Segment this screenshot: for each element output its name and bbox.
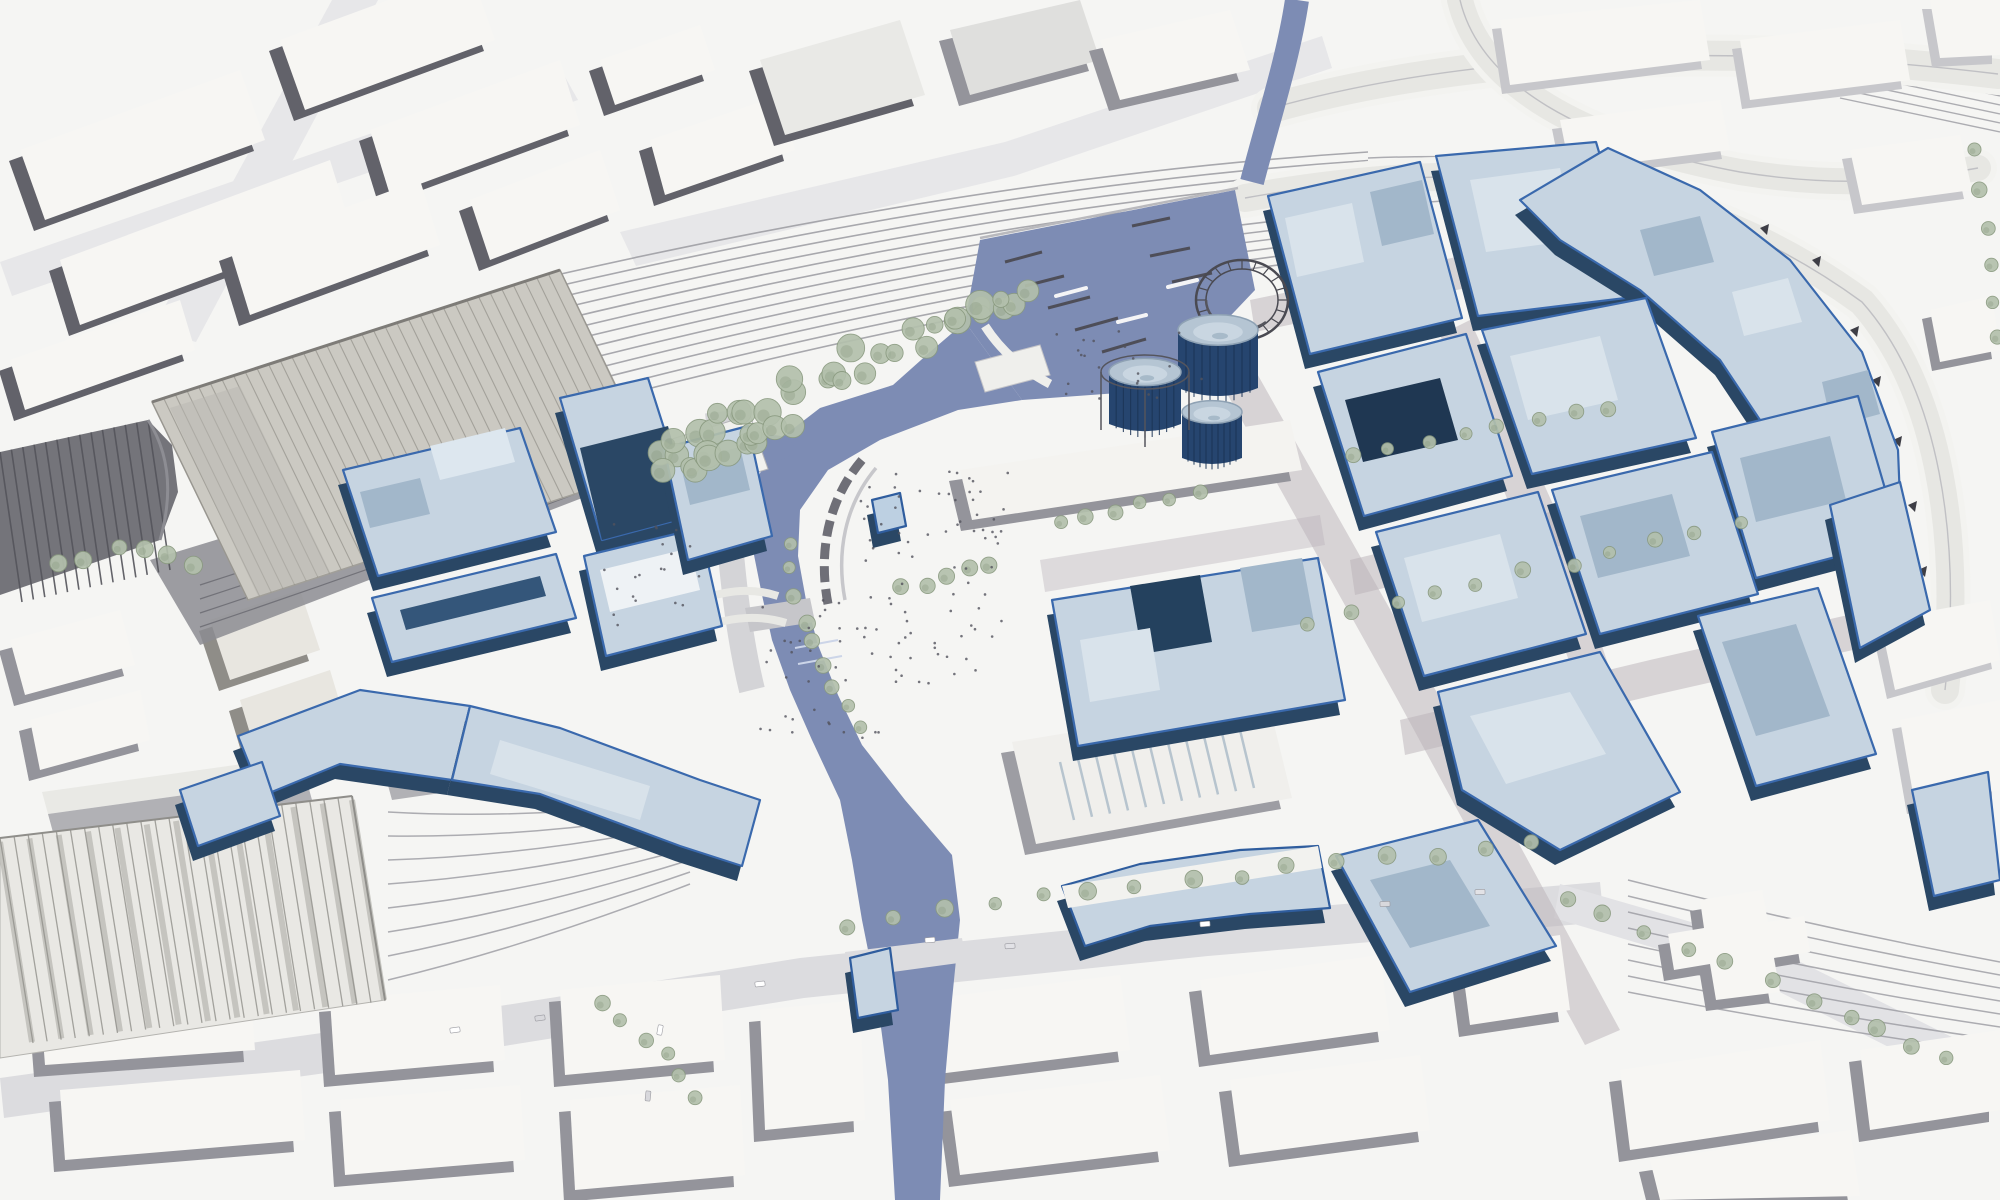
pedestrian: [770, 649, 773, 652]
pedestrian: [634, 599, 637, 602]
tree-shade: [1039, 893, 1045, 899]
pedestrian: [632, 595, 635, 598]
pedestrian: [869, 596, 872, 599]
pedestrian: [616, 624, 619, 627]
tree-shade: [1689, 532, 1695, 538]
pedestrian: [822, 599, 825, 602]
tree-shade: [784, 424, 794, 434]
pedestrian: [968, 491, 971, 494]
car: [450, 1027, 461, 1033]
pedestrian: [907, 541, 910, 544]
tree-shade: [1562, 898, 1569, 905]
pedestrian: [670, 553, 673, 556]
pedestrian: [898, 495, 901, 498]
pedestrian: [933, 646, 936, 649]
pedestrian: [997, 542, 1000, 545]
housing-block: [760, 1000, 865, 1130]
tree-shade: [161, 553, 169, 561]
tree-shade: [641, 1039, 648, 1046]
pedestrian: [898, 532, 901, 535]
pedestrian: [838, 602, 841, 605]
pedestrian: [973, 530, 976, 533]
gasholder-cap: [1208, 416, 1220, 421]
tree-shade: [1870, 1026, 1878, 1034]
tree-shade: [1684, 948, 1690, 954]
pedestrian: [791, 731, 794, 734]
car: [535, 1015, 546, 1021]
pedestrian: [834, 666, 837, 669]
tree-shade: [1491, 425, 1497, 431]
pedestrian: [937, 653, 940, 656]
pedestrian: [827, 721, 830, 724]
tree-shade: [1129, 886, 1135, 892]
tree-shade: [918, 345, 928, 355]
pedestrian: [898, 642, 901, 645]
tree-shade: [1135, 501, 1141, 507]
tree-shade: [983, 564, 990, 571]
pedestrian: [784, 715, 787, 718]
tree-shade: [991, 902, 997, 908]
pedestrian: [895, 680, 898, 683]
tree-shade: [654, 468, 665, 479]
tree-shade: [785, 566, 790, 571]
pedestrian: [1132, 357, 1135, 360]
pedestrian: [675, 529, 678, 532]
pedestrian: [909, 657, 912, 660]
pedestrian: [895, 473, 898, 476]
pedestrian: [1055, 333, 1058, 336]
pedestrian: [897, 552, 900, 555]
tree-shade: [1603, 408, 1610, 415]
pedestrian: [974, 669, 977, 672]
pedestrian: [1082, 339, 1085, 342]
pedestrian: [948, 470, 951, 473]
pedestrian: [894, 506, 897, 509]
tree-shade: [788, 595, 795, 602]
tree-shade: [663, 1052, 669, 1058]
pedestrian: [946, 655, 949, 658]
pedestrian: [861, 736, 864, 739]
pedestrian: [990, 566, 993, 569]
pedestrian: [817, 665, 820, 668]
car: [1200, 921, 1210, 927]
car: [1475, 889, 1485, 894]
pedestrian: [790, 651, 793, 654]
tree-shade: [1280, 864, 1287, 871]
tree-shade: [1081, 890, 1089, 898]
pedestrian: [1156, 396, 1159, 399]
tree-shade: [1737, 521, 1743, 527]
tree-shade: [1394, 601, 1400, 607]
tree-shade: [735, 410, 746, 421]
pedestrian: [863, 518, 866, 521]
tree-shade: [938, 907, 946, 915]
pedestrian: [807, 680, 810, 683]
tree-shade: [1517, 568, 1524, 575]
pedestrian: [789, 641, 792, 644]
car: [645, 1091, 651, 1101]
tree-shade: [780, 376, 792, 388]
pedestrian: [1080, 354, 1083, 357]
pedestrian: [813, 708, 816, 711]
pedestrian: [824, 609, 827, 612]
tree-shade: [1056, 521, 1062, 527]
pedestrian: [952, 593, 955, 596]
tree-shade: [1905, 1045, 1912, 1052]
tree-shade: [664, 438, 675, 449]
tree-shade: [840, 345, 853, 358]
pedestrian: [991, 635, 994, 638]
pedestrian: [863, 636, 866, 639]
tree-shade: [947, 317, 956, 326]
pedestrian: [1124, 345, 1127, 348]
pedestrian: [974, 628, 977, 631]
pedestrian: [1000, 530, 1003, 533]
tree-shade: [1570, 564, 1576, 570]
pedestrian: [616, 587, 619, 590]
pedestrian: [869, 539, 872, 542]
pedestrian: [919, 490, 922, 493]
pedestrian: [890, 603, 893, 606]
car: [1380, 901, 1390, 907]
pedestrian: [1002, 508, 1005, 511]
pedestrian: [1200, 378, 1203, 381]
pedestrian: [894, 486, 897, 489]
pedestrian: [965, 658, 968, 661]
tree-shade: [826, 686, 833, 693]
tree-shade: [1767, 979, 1774, 986]
pedestrian: [889, 656, 892, 659]
pedestrian: [698, 575, 701, 578]
pedestrian: [603, 569, 606, 572]
pedestrian: [904, 611, 907, 614]
housing-block: [570, 1085, 745, 1190]
masterplan-rendering: [0, 0, 2000, 1200]
pedestrian: [956, 523, 959, 526]
pedestrian: [949, 610, 952, 613]
pedestrian: [798, 640, 801, 643]
pedestrian: [860, 500, 863, 503]
pedestrian: [1083, 354, 1086, 357]
tree-shade: [674, 1074, 680, 1080]
pedestrian: [681, 604, 684, 607]
pedestrian: [661, 543, 664, 546]
pedestrian: [953, 566, 956, 569]
pedestrian: [979, 490, 982, 493]
tree-shade: [964, 566, 971, 573]
tree-shade: [1080, 515, 1087, 522]
pedestrian: [900, 674, 903, 677]
tree-shade: [766, 425, 777, 436]
pedestrian: [663, 568, 666, 571]
tree-shade: [1809, 1000, 1816, 1007]
pedestrian: [638, 574, 641, 577]
pedestrian: [1077, 349, 1080, 352]
pedestrian: [911, 555, 914, 558]
tree-shade: [1302, 623, 1308, 629]
pedestrian: [933, 642, 936, 645]
pedestrian: [1000, 620, 1003, 623]
tree-shade: [995, 298, 1002, 305]
pedestrian: [1098, 366, 1101, 369]
tree-shade: [1470, 584, 1476, 590]
pedestrian: [843, 731, 846, 734]
proposed-pavilion: [872, 493, 906, 533]
tree-shade: [928, 323, 936, 331]
tree-shade: [52, 562, 60, 570]
pedestrian: [838, 627, 841, 630]
pedestrian: [871, 652, 874, 655]
tree-shade: [1534, 418, 1540, 424]
tree-shade: [1425, 441, 1431, 447]
pedestrian: [1092, 340, 1095, 343]
tree-shade: [1988, 301, 1994, 307]
pedestrian: [895, 669, 898, 672]
pedestrian: [866, 505, 869, 508]
pedestrian: [864, 559, 867, 562]
tree-shade: [750, 431, 759, 440]
pedestrian: [839, 640, 842, 643]
tree-shade: [77, 558, 85, 566]
pedestrian: [783, 640, 786, 643]
pedestrian: [965, 567, 968, 570]
pedestrian: [874, 731, 877, 734]
tree-shade: [940, 575, 947, 582]
tree-shade: [969, 302, 982, 315]
pedestrian: [1091, 390, 1094, 393]
pedestrian: [612, 613, 615, 616]
pedestrian: [1065, 393, 1068, 396]
tree-shade: [1330, 860, 1337, 867]
tree-shade: [1649, 538, 1656, 545]
tree-shade: [114, 546, 121, 553]
pedestrian: [765, 661, 768, 664]
tree-shade: [895, 585, 902, 592]
pedestrian: [809, 649, 812, 652]
pedestrian: [791, 718, 794, 721]
pedestrian: [972, 498, 975, 501]
pedestrian: [1168, 365, 1171, 368]
tree-shade: [138, 547, 146, 555]
pedestrian: [904, 636, 907, 639]
tree-shade: [597, 1002, 604, 1009]
tree-shade: [1348, 454, 1355, 461]
proposed-pavilion: [850, 948, 898, 1018]
tree-shade: [1020, 289, 1030, 299]
pedestrian: [819, 615, 822, 618]
pedestrian: [1137, 372, 1140, 375]
tree-shade: [1992, 336, 1998, 342]
tree-shade: [1941, 1057, 1947, 1063]
pedestrian: [967, 582, 970, 585]
pedestrian: [868, 486, 871, 489]
pedestrian: [938, 492, 941, 495]
tree-shade: [905, 327, 915, 337]
tree-shade: [801, 622, 808, 629]
pedestrian: [807, 627, 810, 630]
tree-shade: [699, 455, 710, 466]
pedestrian: [875, 628, 878, 631]
gasholder-cap: [1212, 333, 1228, 339]
tree-shade: [686, 468, 697, 479]
tree-shade: [718, 451, 730, 463]
pedestrian: [960, 635, 963, 638]
pedestrian: [880, 523, 883, 526]
tree-shade: [703, 430, 714, 441]
pedestrian: [689, 545, 692, 548]
pedestrian: [761, 606, 764, 609]
pedestrian: [927, 533, 930, 536]
tree-shade: [888, 351, 896, 359]
tree-shade: [835, 379, 843, 387]
pedestrian: [1006, 472, 1009, 475]
tree-shade: [1986, 264, 1992, 270]
pedestrian: [994, 536, 997, 539]
masterplan-viewport: [0, 0, 2000, 1200]
tree-shade: [1237, 876, 1243, 882]
tree-shade: [615, 1019, 621, 1025]
tree-shade: [1462, 432, 1467, 437]
tree-shade: [888, 916, 895, 923]
tree-shade: [690, 1096, 696, 1102]
pedestrian: [906, 620, 909, 623]
tree-shade: [1973, 188, 1980, 195]
tree-shade: [1596, 912, 1603, 919]
pedestrian: [844, 679, 847, 682]
tree-shade: [1195, 491, 1201, 497]
pedestrian: [1117, 330, 1120, 333]
pedestrian: [1067, 382, 1070, 385]
pedestrian: [953, 673, 956, 676]
tree-shade: [844, 704, 850, 710]
tree-shade: [1164, 498, 1170, 504]
pedestrian: [956, 472, 959, 475]
tree-shade: [1970, 148, 1976, 154]
tree-shade: [1571, 410, 1578, 417]
pedestrian: [872, 547, 875, 550]
tree-shade: [1380, 854, 1388, 862]
pedestrian: [968, 477, 971, 480]
pedestrian: [909, 632, 912, 635]
pedestrian: [1137, 380, 1140, 383]
pedestrian: [856, 627, 859, 630]
tree-shade: [842, 926, 849, 933]
tree-shade: [857, 371, 867, 381]
tree-shade: [1639, 931, 1645, 937]
pedestrian: [864, 627, 867, 630]
pedestrian: [769, 729, 772, 732]
tree-shade: [856, 726, 862, 732]
pedestrian: [945, 530, 948, 533]
pedestrian: [972, 480, 975, 483]
pedestrian: [759, 728, 762, 731]
pedestrian: [634, 576, 637, 579]
tree-shade: [710, 411, 719, 420]
pedestrian: [982, 529, 985, 532]
tree-shade: [873, 352, 882, 361]
pedestrian: [984, 537, 987, 540]
pedestrian: [1147, 393, 1150, 396]
tree-shade: [786, 543, 792, 549]
pedestrian: [954, 499, 957, 502]
housing-block: [560, 975, 725, 1075]
pedestrian: [1098, 397, 1101, 400]
tree-shade: [1480, 847, 1487, 854]
context-block: [1930, 0, 2000, 58]
tree-shade: [1846, 1016, 1852, 1022]
tree-shade: [187, 563, 195, 571]
pedestrian: [991, 531, 994, 534]
pedestrian: [978, 607, 981, 610]
pedestrian: [993, 518, 996, 521]
car: [925, 937, 935, 943]
tree-shade: [1430, 591, 1436, 597]
housing-block: [340, 1085, 525, 1175]
pedestrian: [655, 527, 658, 530]
pedestrian: [1178, 331, 1181, 334]
tree-shade: [1383, 448, 1388, 453]
tree-shade: [806, 639, 813, 646]
pedestrian: [959, 520, 962, 523]
tree-shade: [922, 584, 929, 591]
pedestrian: [660, 568, 663, 571]
pedestrian: [888, 597, 891, 600]
proposed-building-roof-detail: [1080, 628, 1160, 702]
tree-shade: [1719, 960, 1726, 967]
pedestrian: [948, 493, 951, 496]
pedestrian: [976, 513, 979, 516]
pedestrian: [984, 593, 987, 596]
tree-shade: [1110, 511, 1117, 518]
pedestrian: [877, 731, 880, 734]
tree-shade: [1526, 841, 1532, 847]
pedestrian: [785, 676, 788, 679]
pedestrian: [613, 523, 616, 526]
tree-shade: [1187, 877, 1195, 885]
tree-shade: [1432, 855, 1439, 862]
pedestrian: [1136, 382, 1139, 385]
tree-shade: [1346, 611, 1353, 618]
tree-shade: [1983, 227, 1989, 233]
pedestrian: [918, 681, 921, 684]
pedestrian: [927, 682, 930, 685]
pedestrian: [901, 583, 904, 586]
tree-shade: [1605, 551, 1610, 556]
car: [755, 981, 766, 987]
gasholder-cap: [1140, 375, 1154, 381]
pedestrian: [674, 602, 677, 605]
car: [1005, 943, 1015, 949]
pedestrian: [970, 624, 973, 627]
